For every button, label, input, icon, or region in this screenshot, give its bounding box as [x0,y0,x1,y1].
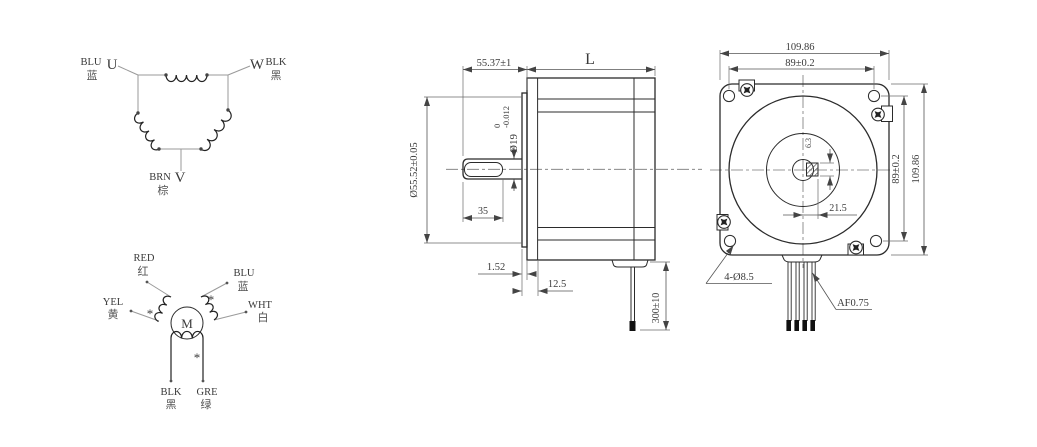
lead-line-w [228,66,250,75]
polarity-asterisk: * [194,350,201,365]
lead-line-u [118,66,138,75]
dim-key-width: 6.3 [804,138,813,148]
terminal-v-wire-label-cn: 棕 [158,183,169,197]
lead-label-blk: BLK [161,387,182,398]
lead-label-yel-cn: 黄 [108,307,119,321]
assembly-screw-icon [849,241,863,255]
dim-lead-spec: AF0.75 [837,298,869,309]
flange-outline [720,84,889,255]
motor-label: M [181,316,193,331]
front-plate [522,93,527,247]
lead-wires [788,262,815,321]
dim-shaft-length: 55.37±1 [477,58,512,69]
terminal-u-wire-label: BLU [81,57,102,68]
dim-hole-spacing-v: 89±0.2 [891,154,902,183]
lead-label-gre-cn: 绿 [201,397,212,411]
wire-tips [786,320,815,331]
cable-boot [782,255,822,262]
terminal-u-wire-label-cn: 蓝 [87,69,98,82]
lead-label-yel: YEL [103,297,123,308]
polarity-asterisk: * [208,292,215,307]
mounting-holes [723,90,881,246]
lead-label-gre: GRE [197,387,218,398]
dim-key-flat-offset: 21.5 [829,203,847,214]
dim-boss-depth: 12.5 [548,279,566,290]
terminal-v-wire-label: BRN [149,172,171,183]
dim-mounting-holes: 4-Ø8.5 [724,272,753,283]
winding-right [200,110,234,153]
motor-side-view: 55.37±1 L Ø55.52±0.05 Ø19 0 -0.012 35 1.… [409,51,702,331]
screw-notches [717,80,893,255]
polarity-asterisk: * [147,306,154,321]
assembly-screw-icon [717,215,731,229]
dim-flat-length: 35 [478,206,488,217]
lead-line-wht [214,312,246,320]
lead-label-blu: BLU [234,268,255,279]
technical-drawing-page: BLU 蓝 U W BLK 黑 BRN V 棕 M * * * RED 红 [0,0,1037,447]
dim-pilot-diameter: Ø55.52±0.05 [409,142,420,197]
shaft-key [807,163,819,176]
phase-w-label: W [250,57,265,73]
wire-tip [630,321,636,331]
winding-top [166,75,207,82]
dim-shaft-tol-lower: -0.012 [501,106,511,128]
terminal-w-wire-label-cn: 黑 [271,69,282,82]
lead-label-red: RED [134,253,155,264]
delta-winding-diagram: BLU 蓝 U W BLK 黑 BRN V 棕 [81,57,287,197]
motor-lead-diagram: M * * * RED 红 BLU 蓝 YEL 黄 WHT 白 BLK 黑 GR… [103,253,273,411]
dim-hole-spacing-h: 89±0.2 [785,58,814,69]
phase-coil-a [153,294,171,321]
motor-front-view: 109.86 89±0.2 89±0.2 109.86 21.5 6.3 4-Ø… [706,42,928,331]
lead-line-red [147,282,171,297]
winding-left [132,113,160,152]
dim-plate-thickness: 1.52 [487,262,505,273]
lead-label-red-cn: 红 [138,265,149,278]
dim-lead-length: 300±10 [651,293,662,324]
drawing-svg: BLU 蓝 U W BLK 黑 BRN V 棕 M * * * RED 红 [0,0,1037,447]
lead-label-wht-cn: 白 [258,310,269,324]
assembly-screw-icon [740,83,754,97]
dim-width: 109.86 [786,42,815,53]
lead-label-blu-cn: 蓝 [238,280,249,293]
lead-label-wht: WHT [248,300,272,311]
side-extension-lines [424,66,670,330]
assembly-screw-icon [871,108,885,122]
cable-boot [612,260,648,267]
terminal-w-wire-label: BLK [266,57,287,68]
dim-shaft-diameter: Ø19 [508,134,520,153]
phase-v-label: V [175,170,186,186]
lead-label-blk-cn: 黑 [166,398,177,411]
dim-height: 109.86 [911,155,922,184]
dim-body-length: L [585,51,595,68]
phase-u-label: U [107,57,118,73]
